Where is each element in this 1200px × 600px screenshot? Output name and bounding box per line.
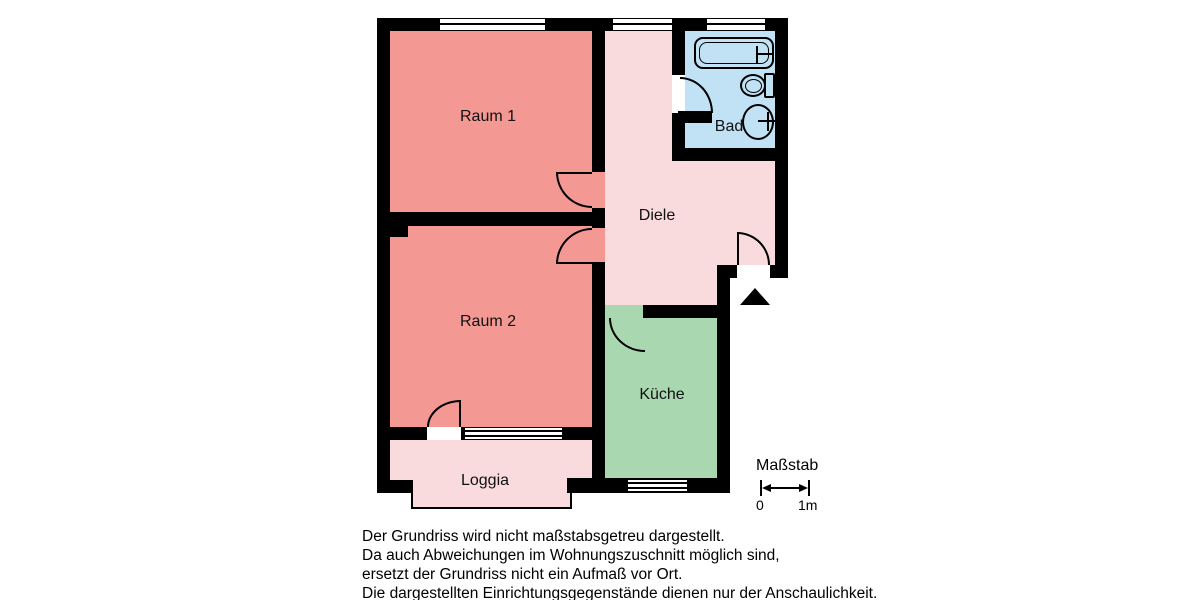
wall-entrance-left: [717, 265, 737, 278]
wall-rooms-diele-mid: [592, 208, 605, 228]
loggia-label: Loggia: [461, 472, 509, 490]
sink-tap-tick: [767, 112, 769, 131]
wall-rooms-diele-upper: [592, 18, 605, 172]
wall-notch: [390, 226, 408, 237]
floorplan-canvas: Raum 1 Raum 2 Diele Bad Küche Loggia Maß…: [0, 0, 1200, 600]
scale-zero-label: 0: [756, 497, 764, 513]
wall-left: [377, 18, 390, 493]
disclaimer-line-4: Die dargestellten Einrichtungsgegenständ…: [362, 584, 877, 600]
window-kueche-icon: [628, 480, 687, 491]
disclaimer-line-1: Der Grundriss wird nicht maßstabsgetreu …: [362, 527, 877, 546]
doorway-raum2-loggia: [427, 427, 461, 440]
toilet-icon: [740, 74, 766, 97]
wall-bad-bottom: [672, 148, 788, 161]
diele-fill-lower: [605, 265, 717, 305]
bad-label: Bad: [715, 118, 743, 136]
disclaimer-line-3: ersetzt der Grundriss nicht ein Aufmaß v…: [362, 565, 877, 584]
disclaimer-line-2: Da auch Abweichungen im Wohnungszuschnit…: [362, 546, 877, 565]
sink-icon: [742, 104, 774, 140]
loggia-outline-bottom: [411, 507, 572, 509]
scale-tick-right: [808, 480, 810, 496]
raum2-doorgap-fill: [592, 228, 605, 262]
wall-kueche-top: [643, 305, 717, 318]
kueche-label: Küche: [639, 386, 684, 404]
wall-bad-left-upper: [672, 18, 685, 75]
scale-line: [768, 487, 802, 489]
wall-entrance-right: [770, 265, 788, 278]
sink-tap-line: [758, 120, 788, 122]
scale-1m-label: 1m: [798, 497, 817, 513]
diele-label: Diele: [639, 207, 675, 225]
window-diele-icon: [613, 19, 672, 30]
scale-title: Maßstab: [756, 457, 818, 475]
wall-rooms-diele-lower: [592, 262, 605, 480]
raum1-doorgap-fill: [592, 172, 605, 208]
raum2-label: Raum 2: [460, 313, 516, 331]
window-raum1-icon: [440, 19, 545, 30]
loggia-outline-right: [570, 489, 572, 509]
scale-arrowhead-left: [762, 484, 771, 492]
scale-arrowhead-right: [799, 484, 808, 492]
raum1-label: Raum 1: [460, 108, 516, 126]
diele-fill-upper: [605, 31, 672, 148]
toilet-cistern-icon: [764, 73, 775, 98]
window-raum2-loggia-icon: [465, 428, 562, 439]
wall-loggia-stub: [377, 480, 413, 493]
wall-kueche-right: [717, 265, 730, 493]
disclaimer-text: Der Grundriss wird nicht maßstabsgetreu …: [362, 527, 877, 600]
entrance-arrow-icon: [740, 288, 770, 305]
window-bad-icon: [707, 19, 765, 30]
wall-raum1-raum2: [377, 212, 605, 226]
bathtub-icon: [694, 37, 774, 69]
